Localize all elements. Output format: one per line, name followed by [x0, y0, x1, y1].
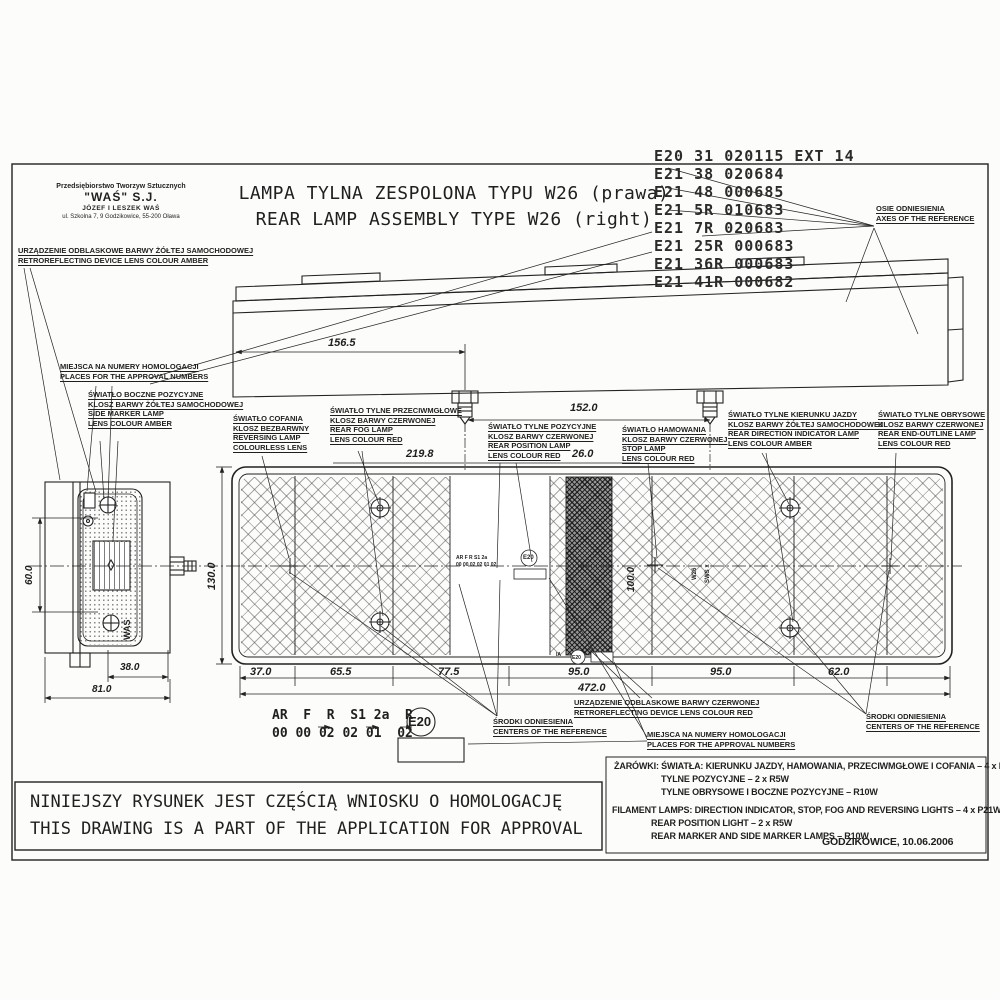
label-line: RETROREFLECTING DEVICE LENS COLOUR RED: [574, 708, 759, 718]
drawing-title: LAMPA TYLNA ZESPOLONA TYPU W26 (prawa) R…: [228, 181, 680, 233]
approval-stamp-row: E21 48 000685: [654, 184, 784, 200]
approval-stamp-row: E21 36R 000683: [654, 256, 794, 272]
label-line: MIEJSCA NA NUMERY HOMOLOGACJI: [647, 730, 795, 740]
title-pl: LAMPA TYLNA ZESPOLONA TYPU W26 (prawa): [228, 181, 680, 207]
inner-marking-codes: AR F R S1 2a: [456, 555, 487, 561]
label-line: MIEJSCA NA NUMERY HOMOLOGACJI: [60, 362, 208, 372]
company-block: Przedsiębiorstwo Tworzyw Sztucznych "WAŚ…: [26, 182, 216, 221]
label-side-marker-lamp: ŚWIATŁO BOCZNE POZYCYJNE KLOSZ BARWY ŻÓŁ…: [88, 390, 243, 428]
molded-type-mark: W26: [692, 568, 699, 580]
label-line: URZĄDZENIE ODBLASKOWE BARWY ŻÓŁTEJ SAMOC…: [18, 246, 253, 256]
label-direction-indicator-lamp: ŚWIATŁO TYLNE KIERUNKU JAZDY KLOSZ BARWY…: [728, 410, 883, 448]
label-stop-lamp: ŚWIATŁO HAMOWANIA KLOSZ BARWY CZERWONEJ …: [622, 425, 727, 463]
inner-marking-values: 00 00 02 02 01 02: [456, 562, 496, 568]
label-line: KLOSZ BARWY CZERWONEJ: [622, 435, 727, 445]
molded-sws-mark: SWS x: [705, 564, 712, 583]
inner-e20-mark: E20: [523, 555, 534, 561]
label-line: SIDE MARKER LAMP: [88, 409, 243, 419]
label-line: PLACES FOR THE APPROVAL NUMBERS: [60, 372, 208, 382]
dim-seg-37: 37.0: [250, 666, 271, 678]
label-line: KLOSZ BARWY CZERWONEJ: [330, 416, 462, 426]
drawing-sheet: Przedsiębiorstwo Tworzyw Sztucznych "WAŚ…: [0, 0, 1000, 1000]
label-rear-fog-lamp: ŚWIATŁO TYLNE PRZECIWMGŁOWE KLOSZ BARWY …: [330, 406, 462, 444]
label-line: ŚRODKI ODNIESIENIA: [866, 712, 980, 722]
label-line: ŚWIATŁO HAMOWANIA: [622, 425, 727, 435]
label-line: REAR END-OUTLINE LAMP: [878, 429, 985, 439]
brand-mark-vertical: WAŚ: [124, 619, 131, 640]
label-line: ŚWIATŁO COFANIA: [233, 414, 309, 424]
side-view: [45, 482, 196, 667]
label-centers-of-reference-left: ŚRODKI ODNIESIENIA CENTERS OF THE REFERE…: [493, 717, 607, 736]
approval-stamp-row: E21 7R 020683: [654, 220, 784, 236]
statement-en: THIS DRAWING IS A PART OF THE APPLICATIO…: [30, 816, 583, 843]
title-en: REAR LAMP ASSEMBLY TYPE W26 (right): [228, 207, 680, 233]
label-line: KLOSZ BARWY CZERWONEJ: [488, 432, 596, 442]
label-line: REAR DIRECTION INDICATOR LAMP: [728, 429, 883, 439]
label-line: REVERSING LAMP: [233, 433, 309, 443]
label-line: KLOSZ BARWY ŻÓŁTEJ SAMOCHODOWEJ: [88, 400, 243, 410]
label-line: CENTERS OF THE REFERENCE: [866, 722, 980, 732]
dim-156-5: 156.5: [328, 337, 356, 349]
label-red-retroreflector: URZĄDZENIE ODBLASKOWE BARWY CZERWONEJ RE…: [574, 698, 759, 717]
label-line: ŚWIATŁO TYLNE OBRYSOWE: [878, 410, 985, 420]
dim-26-0: 26.0: [572, 448, 593, 460]
label-line: ŚWIATŁO TYLNE POZYCYJNE: [488, 422, 596, 432]
notes-en-2: REAR POSITION LIGHT – 2 x R5W: [651, 817, 792, 830]
company-owners: JÓZEF I LESZEK WAŚ: [26, 204, 216, 213]
label-line: LENS COLOUR AMBER: [728, 439, 883, 449]
notes-pl-1: ŻARÓWKI: ŚWIATŁA: KIERUNKU JAZDY, HAMOWA…: [614, 760, 1000, 773]
approval-statement: NINIEJSZY RYSUNEK JEST CZĘŚCIĄ WNIOSKU O…: [30, 789, 583, 843]
approval-stamp-row: E21 41R 000682: [654, 274, 794, 290]
label-line: ŚWIATŁO TYLNE PRZECIWMGŁOWE: [330, 406, 462, 416]
approval-stamp-row: E21 5R 010683: [654, 202, 784, 218]
e20-mark: E20: [408, 715, 431, 729]
dim-219-8: 219.8: [406, 448, 434, 460]
dim-seg-62: 62.0: [828, 666, 849, 678]
marking-values: 00 00 02 02 01 02: [272, 726, 413, 741]
label-line: STOP LAMP: [622, 444, 727, 454]
statement-pl: NINIEJSZY RYSUNEK JEST CZĘŚCIĄ WNIOSKU O…: [30, 789, 583, 816]
dim-130-0: 130.0: [206, 562, 218, 590]
label-line: KLOSZ BEZBARWNY: [233, 424, 309, 434]
ia-e20-mark: E20: [572, 655, 581, 661]
label-line: LENS COLOUR RED: [878, 439, 985, 449]
rear-view: [232, 467, 952, 664]
dim-seg-77-5: 77.5: [438, 666, 459, 678]
label-end-outline-lamp: ŚWIATŁO TYLNE OBRYSOWE KLOSZ BARWY CZERW…: [878, 410, 985, 448]
dim-seg-95b: 95.0: [710, 666, 731, 678]
dim-total-472: 472.0: [578, 682, 606, 694]
label-line: LENS COLOUR RED: [622, 454, 727, 464]
company-name: "WAŚ" S.J.: [26, 191, 216, 204]
approval-stamp-row: E21 25R 000683: [654, 238, 794, 254]
label-approval-places-bottom: MIEJSCA NA NUMERY HOMOLOGACJI PLACES FOR…: [647, 730, 795, 749]
label-line: COLOURLESS LENS: [233, 443, 309, 453]
ia-mark: IA: [556, 652, 561, 658]
approval-stamp-row: E20 31 020115 EXT 14: [654, 148, 855, 164]
label-amber-retroreflector: URZĄDZENIE ODBLASKOWE BARWY ŻÓŁTEJ SAMOC…: [18, 246, 253, 265]
place-and-date: GODZIKOWICE, 10.06.2006: [822, 836, 953, 849]
dim-152-0: 152.0: [570, 402, 598, 414]
label-line: AXES OF THE REFERENCE: [876, 214, 974, 224]
dim-100-0: 100.0: [626, 567, 638, 592]
dim-seg-65-5: 65.5: [330, 666, 351, 678]
label-reversing-lamp: ŚWIATŁO COFANIA KLOSZ BEZBARWNY REVERSIN…: [233, 414, 309, 452]
label-line: ŚRODKI ODNIESIENIA: [493, 717, 607, 727]
notes-pl-3: TYLNE OBRYSOWE I BOCZNE POZYCYJNE – R10W: [661, 786, 878, 799]
dim-38-0: 38.0: [120, 662, 139, 674]
dim-60-0: 60.0: [24, 566, 36, 585]
dim-seg-95a: 95.0: [568, 666, 589, 678]
label-line: KLOSZ BARWY CZERWONEJ: [878, 420, 985, 430]
label-line: OSIE ODNIESIENIA: [876, 204, 974, 214]
label-line: REAR FOG LAMP: [330, 425, 462, 435]
label-line: KLOSZ BARWY ŻÓŁTEJ SAMOCHODOWEJ: [728, 420, 883, 430]
label-line: ŚWIATŁO BOCZNE POZYCYJNE: [88, 390, 243, 400]
label-approval-places-left: MIEJSCA NA NUMERY HOMOLOGACJI PLACES FOR…: [60, 362, 208, 381]
label-line: CENTERS OF THE REFERENCE: [493, 727, 607, 737]
label-line: URZĄDZENIE ODBLASKOWE BARWY CZERWONEJ: [574, 698, 759, 708]
notes-en-1: FILAMENT LAMPS: DIRECTION INDICATOR, STO…: [612, 804, 1000, 817]
marking-codes: AR F R S1 2a R: [272, 708, 413, 723]
label-axes-of-reference: OSIE ODNIESIENIA AXES OF THE REFERENCE: [876, 204, 974, 223]
label-line: LENS COLOUR AMBER: [88, 419, 243, 429]
approval-stamp-row: E21 38 020684: [654, 166, 784, 182]
company-address: ul. Szkolna 7, 9 Godzikowice, 55-200 Oła…: [26, 213, 216, 221]
label-centers-of-reference-right: ŚRODKI ODNIESIENIA CENTERS OF THE REFERE…: [866, 712, 980, 731]
label-line: ŚWIATŁO TYLNE KIERUNKU JAZDY: [728, 410, 883, 420]
dim-81-0: 81.0: [92, 684, 111, 696]
notes-pl-2: TYLNE POZYCYJNE – 2 x R5W: [661, 773, 789, 786]
label-line: LENS COLOUR RED: [330, 435, 462, 445]
label-line: RETROREFLECTING DEVICE LENS COLOUR AMBER: [18, 256, 253, 266]
label-line: PLACES FOR THE APPROVAL NUMBERS: [647, 740, 795, 750]
